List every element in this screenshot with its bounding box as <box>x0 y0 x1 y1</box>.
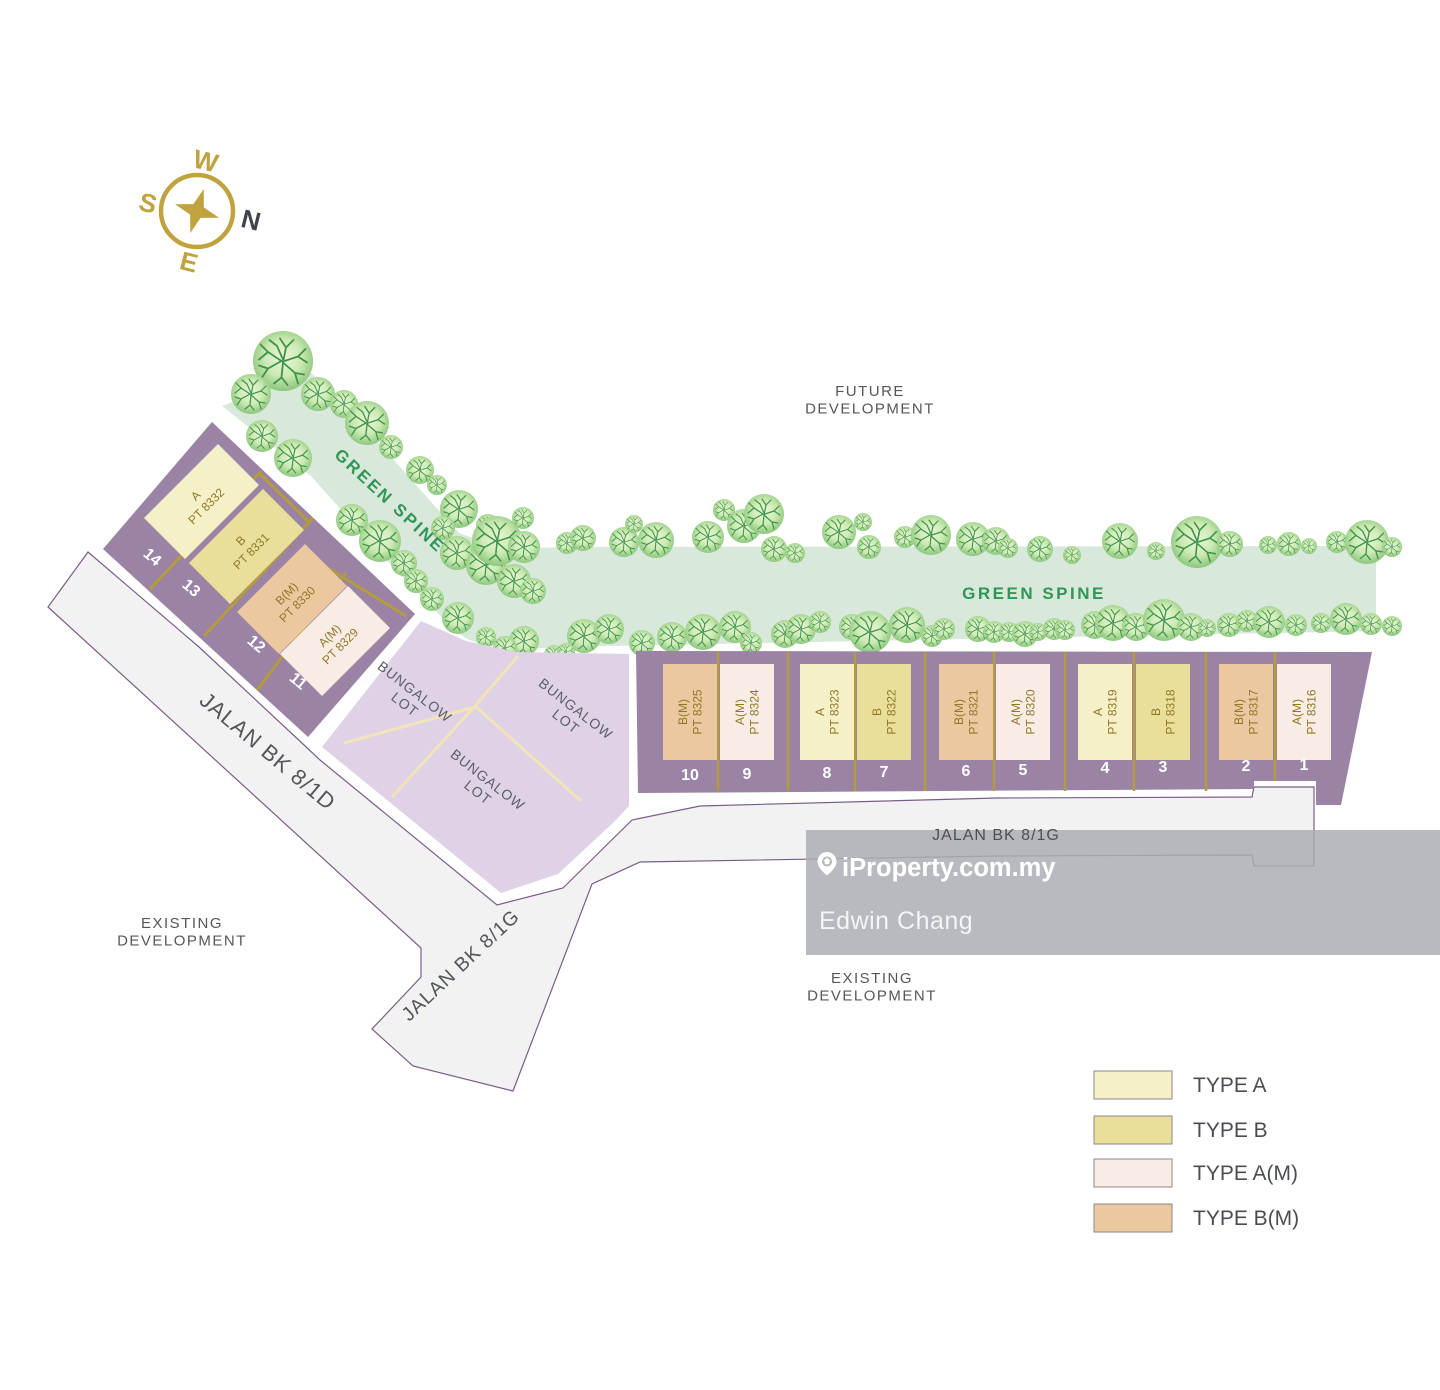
svg-text:N: N <box>238 203 263 237</box>
svg-text:8: 8 <box>823 765 832 782</box>
svg-text:10: 10 <box>681 767 699 784</box>
svg-text:S: S <box>136 186 160 219</box>
svg-text:6: 6 <box>962 763 971 780</box>
svg-text:JALAN BK 8/1G: JALAN BK 8/1G <box>932 827 1060 844</box>
svg-text:TYPE B(M): TYPE B(M) <box>1193 1207 1299 1230</box>
svg-text:9: 9 <box>743 766 752 783</box>
svg-text:TYPE A: TYPE A <box>1193 1074 1267 1097</box>
svg-text:iProperty.com.my: iProperty.com.my <box>842 854 1056 882</box>
svg-text:2: 2 <box>1242 758 1251 775</box>
svg-text:3: 3 <box>1159 759 1168 776</box>
svg-text:FUTUREDEVELOPMENT: FUTUREDEVELOPMENT <box>805 383 935 418</box>
svg-text:EXISTINGDEVELOPMENT: EXISTINGDEVELOPMENT <box>807 970 937 1005</box>
svg-text:TYPE A(M): TYPE A(M) <box>1193 1162 1298 1185</box>
svg-text:7: 7 <box>880 764 889 781</box>
svg-text:4: 4 <box>1101 760 1110 777</box>
svg-text:TYPE B: TYPE B <box>1193 1119 1268 1142</box>
svg-text:5: 5 <box>1019 762 1028 779</box>
svg-text:E: E <box>177 245 201 278</box>
svg-text:1: 1 <box>1300 757 1309 774</box>
svg-text:W: W <box>190 143 222 178</box>
svg-text:GREEN SPINE: GREEN SPINE <box>962 584 1106 603</box>
svg-text:Edwin Chang: Edwin Chang <box>819 907 973 935</box>
svg-text:EXISTINGDEVELOPMENT: EXISTINGDEVELOPMENT <box>117 915 247 950</box>
